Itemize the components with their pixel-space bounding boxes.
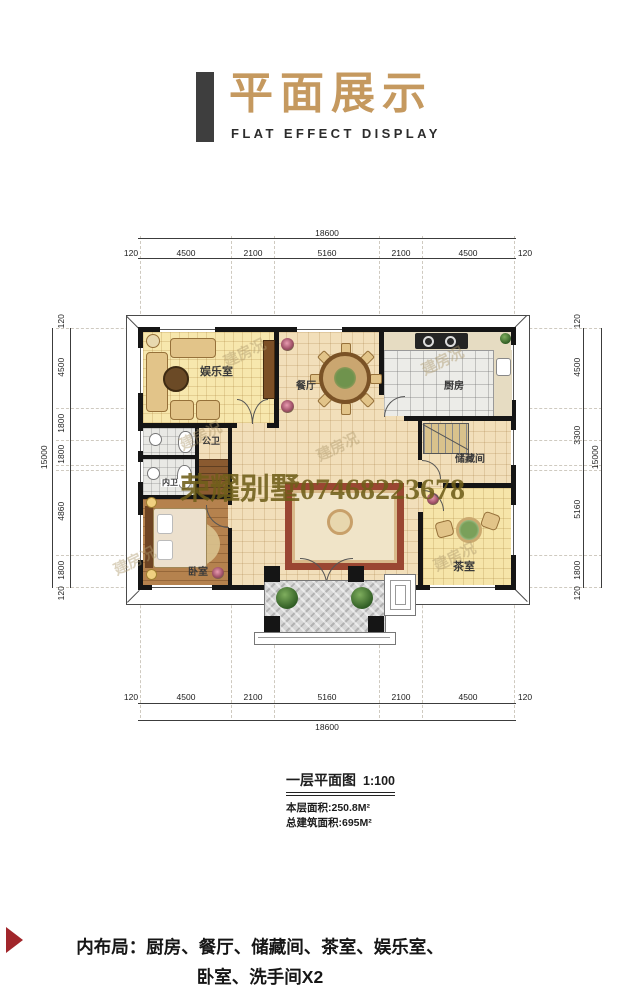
window <box>511 505 516 555</box>
floor-plan-poster: { "header": { "title": "平面展示", "subtitle… <box>0 0 640 992</box>
plan-caption-scale: 1:100 <box>363 774 395 788</box>
window <box>511 430 516 465</box>
dimension-line-right-segments <box>583 328 584 588</box>
header-bar-mark <box>196 72 214 142</box>
dim-label: 18600 <box>307 229 347 238</box>
sink <box>147 467 160 480</box>
dining-chair <box>341 403 351 415</box>
porch-step-line <box>258 637 390 638</box>
dimension-line-top-segments <box>138 258 516 259</box>
window <box>297 327 342 332</box>
page-title: 平面展示 <box>229 70 433 118</box>
window <box>138 348 143 393</box>
dim-label: 2100 <box>235 693 271 702</box>
porch-pillar <box>264 566 280 582</box>
dimension-line-right-overall <box>601 328 602 588</box>
dimension-line-bottom-segments <box>138 703 516 704</box>
plan-caption-title-row: 一层平面图 1:100 <box>286 770 395 796</box>
dim-label: 5160 <box>573 489 582 529</box>
room-label-kitchen: 厨房 <box>444 382 464 392</box>
dim-label: 120 <box>507 693 543 702</box>
pillow <box>157 514 173 534</box>
room-label-ensuite-bath: 内卫 <box>161 479 179 487</box>
dimension-line-bottom-overall <box>138 720 516 721</box>
rug-motif <box>327 509 353 535</box>
dim-label: 15000 <box>591 437 600 477</box>
dim-label: 4860 <box>57 491 66 531</box>
dim-label: 2100 <box>383 249 419 258</box>
dining-chair <box>370 374 382 384</box>
porch-pillar <box>348 566 364 582</box>
dim-label: 2100 <box>235 249 271 258</box>
plan-total-area: 总建筑面积:695M² <box>286 815 372 830</box>
window <box>138 431 143 451</box>
wall-segment <box>418 420 422 460</box>
dim-label: 3300 <box>573 415 582 455</box>
pillow <box>157 540 173 560</box>
side-step-line <box>395 585 406 605</box>
porch-pillar <box>368 616 384 632</box>
dim-label: 4500 <box>450 249 486 258</box>
wall-segment <box>143 423 237 428</box>
bedside-lamp <box>146 569 157 580</box>
dim-label: 18600 <box>307 723 347 732</box>
dim-label: 4500 <box>168 249 204 258</box>
sink <box>149 433 162 446</box>
window <box>138 462 143 482</box>
dim-label: 4500 <box>168 693 204 702</box>
dim-label: 4500 <box>450 693 486 702</box>
side-steps <box>384 574 416 616</box>
dim-label: 15000 <box>40 437 49 477</box>
dimension-line-left-overall <box>52 328 53 588</box>
page-subtitle: FLAT EFFECT DISPLAY <box>231 126 441 141</box>
footer-line2: 卧室、洗手间X2 <box>75 962 445 992</box>
dim-label: 5160 <box>309 693 345 702</box>
dim-label: 120 <box>113 249 149 258</box>
wall-segment <box>228 528 232 590</box>
dim-label: 4500 <box>573 347 582 387</box>
dim-label: 2100 <box>383 693 419 702</box>
dim-label: 120 <box>57 573 66 613</box>
bedroom-flower <box>212 567 224 579</box>
footer-line1: 内布局：厨房、餐厅、储藏间、茶室、娱乐室、 <box>75 932 445 962</box>
dim-label: 4500 <box>57 347 66 387</box>
window <box>160 327 215 332</box>
dim-label: 120 <box>113 693 149 702</box>
plan-floor-area: 本层面积:250.8M² <box>286 800 370 815</box>
bedside-lamp <box>146 497 157 508</box>
coffee-table <box>163 366 189 392</box>
kitchen-plant <box>500 333 511 344</box>
dim-label: 120 <box>573 573 582 613</box>
window <box>152 585 212 590</box>
dimension-line-left-segments <box>70 328 71 588</box>
potted-plant <box>281 338 294 351</box>
dim-label: 5160 <box>309 249 345 258</box>
wall-segment <box>267 423 279 428</box>
side-table <box>146 334 160 348</box>
dim-label: 120 <box>573 301 582 341</box>
window <box>430 585 495 590</box>
footer-layout-text: 内布局：厨房、餐厅、储藏间、茶室、娱乐室、 卧室、洗手间X2 <box>75 932 445 992</box>
wall-segment <box>418 512 423 585</box>
room-label-bedroom: 卧室 <box>188 568 208 578</box>
wall-segment <box>143 455 195 459</box>
dim-label: 120 <box>57 301 66 341</box>
porch-pillar <box>264 616 280 632</box>
porch-step <box>254 632 396 645</box>
room-label-dining: 餐厅 <box>296 382 316 392</box>
watermark-main: 荣耀别墅07468223678 <box>180 464 465 508</box>
sofa <box>170 338 216 358</box>
dimension-line-top-overall <box>138 238 516 239</box>
armchair <box>170 400 194 420</box>
porch-bush <box>276 587 298 609</box>
porch-bush <box>351 587 373 609</box>
footer-arrow-icon <box>6 927 23 953</box>
dining-table-center <box>334 367 356 389</box>
plan-caption-title: 一层平面图 <box>286 770 356 790</box>
dim-label: 120 <box>507 249 543 258</box>
stove-burner <box>423 336 434 347</box>
kitchen-sink <box>496 358 511 376</box>
dim-label: 1800 <box>57 434 66 474</box>
potted-plant <box>281 400 294 413</box>
